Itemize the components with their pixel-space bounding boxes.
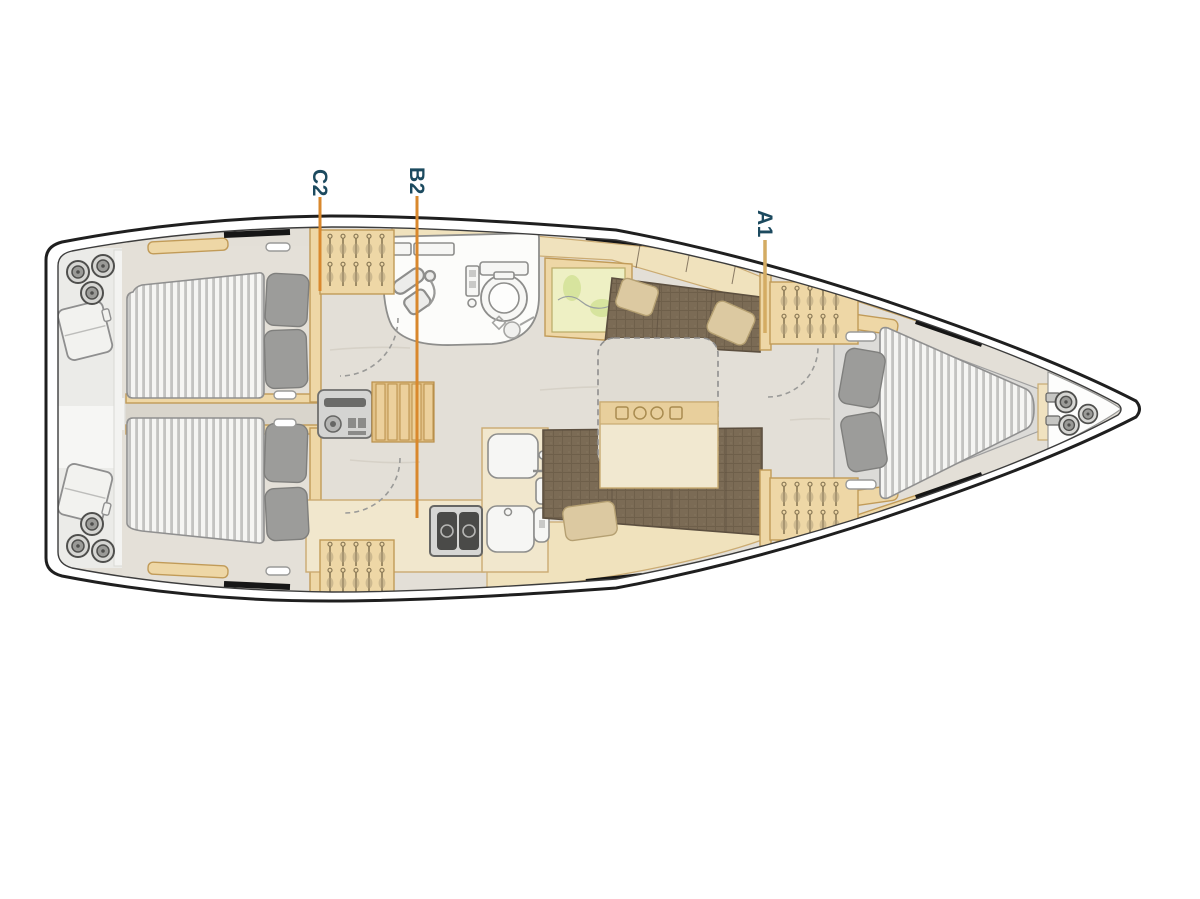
toilet-icon bbox=[480, 262, 528, 321]
winch-icon bbox=[67, 535, 89, 557]
handle-fitting bbox=[266, 567, 290, 575]
sink-icon bbox=[488, 434, 538, 478]
wardrobe-port-aft bbox=[320, 230, 394, 294]
engine-panel bbox=[318, 390, 372, 438]
bed-mattress bbox=[127, 418, 264, 543]
settee-cushion bbox=[562, 501, 618, 542]
aft-cabin-port-bed bbox=[127, 273, 309, 398]
bed-pillow bbox=[265, 273, 310, 327]
interior bbox=[46, 222, 1121, 600]
winch-icon bbox=[67, 261, 89, 283]
hatch-fitting bbox=[846, 480, 876, 489]
bed-pillow bbox=[265, 487, 310, 541]
salon-table bbox=[598, 338, 718, 488]
callout-label-b2: B2 bbox=[405, 167, 428, 195]
winch-icon bbox=[92, 255, 114, 277]
wardrobe-starboard-aft bbox=[320, 540, 394, 598]
callout-label-a1: A1 bbox=[753, 210, 776, 238]
stove-icon bbox=[430, 506, 482, 556]
aft-cabin-starboard-bed bbox=[127, 418, 309, 543]
winch-icon bbox=[92, 540, 114, 562]
hatch-fitting bbox=[846, 332, 876, 341]
bed-pillow bbox=[264, 329, 308, 388]
bed-pillow bbox=[264, 423, 308, 482]
sink-icon bbox=[487, 506, 534, 552]
yacht-floor-plan: C2 B2 A1 bbox=[0, 0, 1200, 899]
handle-fitting bbox=[274, 419, 296, 427]
shower-drain-icon bbox=[504, 322, 520, 338]
floor-plan-svg: C2 B2 A1 bbox=[0, 0, 1200, 899]
callout-label-c2: C2 bbox=[308, 169, 331, 197]
winch-icon bbox=[81, 282, 103, 304]
handle-fitting bbox=[274, 391, 296, 399]
winch-icon bbox=[81, 513, 103, 535]
companionway-steps bbox=[372, 382, 434, 442]
handle-fitting bbox=[266, 243, 290, 251]
head-compartment bbox=[383, 233, 539, 345]
bed-mattress bbox=[127, 273, 264, 398]
